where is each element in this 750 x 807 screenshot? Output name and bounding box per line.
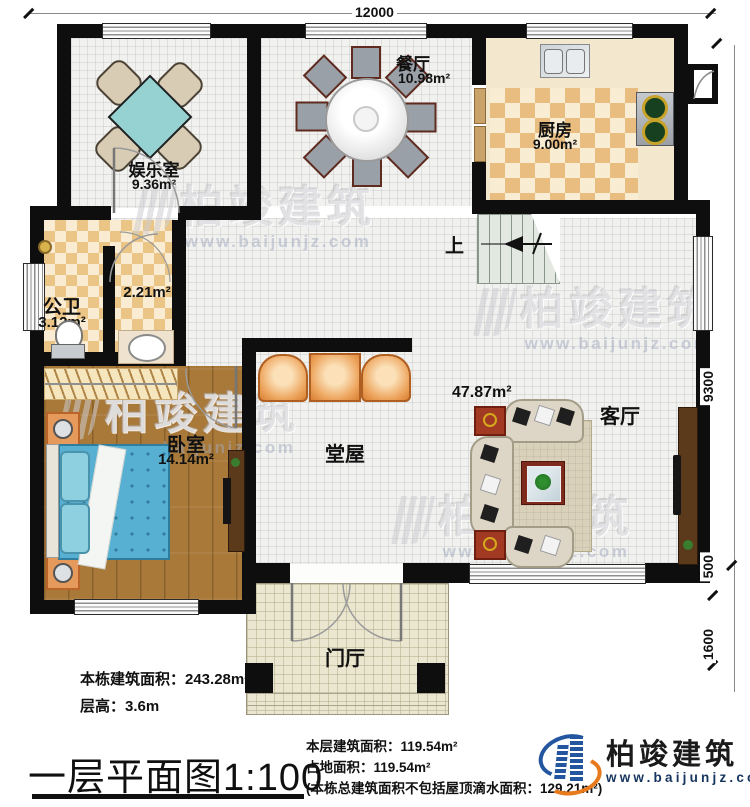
plan-title-underline	[32, 794, 304, 799]
logo-company-name: 柏竣建筑	[606, 740, 750, 770]
sofa-two-seat	[504, 526, 574, 568]
stairs-up-label: 上	[445, 231, 464, 258]
hall-label: 堂屋	[300, 438, 390, 467]
sink-basin	[544, 49, 563, 74]
washroom-area: 2.21m²	[118, 284, 176, 301]
plant	[535, 474, 551, 490]
coffee-table	[521, 461, 565, 505]
end-table-ornament	[483, 413, 497, 427]
wardrobe	[44, 368, 178, 400]
cushion	[480, 504, 499, 523]
end-table	[474, 530, 506, 560]
armchair	[258, 354, 308, 402]
pillow	[60, 451, 90, 502]
living-room-label: 客厅	[580, 400, 660, 429]
floor-height-text: 层高：3.6m	[80, 695, 159, 716]
kitchen-sliding-door	[474, 126, 486, 162]
sink-basin	[566, 49, 585, 74]
bedside-lamp	[53, 563, 73, 583]
window	[75, 600, 198, 614]
sofa-left	[470, 436, 514, 538]
dining-room-area: 10.98m²	[398, 70, 450, 86]
window	[694, 237, 712, 330]
wall-foyer-top-left	[256, 563, 290, 583]
cushion	[534, 405, 555, 426]
logo-website: www.baijunjz.com	[606, 770, 750, 785]
stove-burner	[642, 119, 668, 145]
pillow	[60, 503, 90, 554]
end-table-ornament	[483, 537, 497, 551]
wall-foyer-top-right	[403, 563, 447, 583]
wall-bath-divider	[103, 246, 115, 360]
dimension-right-label: 9300	[700, 368, 716, 405]
sofa-three-seat	[504, 399, 584, 443]
cushion	[512, 407, 531, 426]
wall-left-upper	[57, 24, 71, 220]
cushion	[480, 474, 501, 495]
bedside-lamp	[53, 419, 73, 439]
armchair	[361, 354, 411, 402]
end-table	[474, 406, 506, 436]
kitchen-sliding-door	[474, 88, 486, 124]
plan-title: 一层平面图1:100	[28, 746, 323, 801]
window	[103, 24, 210, 38]
tv-living	[673, 455, 681, 515]
washbasin	[128, 334, 166, 362]
side-table	[309, 353, 361, 402]
cushion	[556, 407, 575, 426]
kitchen-stove	[636, 92, 674, 146]
foyer-door-opening	[290, 564, 403, 583]
foyer-step-line	[247, 693, 446, 694]
foyer-step-line	[247, 705, 446, 706]
stove-burner	[642, 95, 668, 121]
wall-kitchen-bottom	[472, 200, 710, 214]
cushion	[514, 535, 533, 554]
floor-plan-canvas: 柏竣建筑 www.baijunjz.com 柏竣建筑 www.baijunjz.…	[0, 0, 750, 807]
dimension-right-label: 500	[700, 552, 716, 581]
nightstand	[46, 556, 80, 590]
flue-box	[688, 64, 718, 104]
company-logo-icon	[540, 733, 596, 791]
dimension-tick	[707, 590, 718, 601]
living-room-area: 47.87m²	[452, 384, 512, 402]
logo-building-bar	[570, 737, 583, 781]
toilet-tank	[51, 344, 85, 359]
building-area-text: 本栋建筑面积：243.28m²	[80, 668, 249, 689]
ceiling-lamp	[38, 240, 52, 254]
foyer-label: 门厅	[300, 642, 390, 671]
window	[306, 24, 426, 38]
wall-hall-screen	[256, 338, 412, 352]
dimension-right-label: 1600	[700, 626, 716, 663]
foyer-column	[417, 663, 445, 693]
bedroom-area: 14.14m²	[136, 451, 236, 468]
plant	[683, 540, 693, 550]
logo-text-block: 柏竣建筑 www.baijunjz.com	[606, 740, 750, 785]
bed-headboard	[46, 444, 59, 558]
wall-entertainment-bottom	[178, 206, 261, 220]
wall-kitchen-right	[674, 24, 688, 200]
nightstand	[46, 412, 80, 446]
tv	[223, 478, 231, 524]
dimension-tick	[726, 560, 737, 571]
company-logo: 柏竣建筑 www.baijunjz.com	[540, 733, 750, 791]
kitchen-sink	[540, 44, 590, 78]
window	[527, 24, 632, 38]
wardrobe-rail	[45, 383, 177, 385]
dimension-top-label: 12000	[352, 4, 397, 20]
kitchen-area: 9.00m²	[515, 136, 595, 152]
wall-dining-divider	[247, 38, 261, 206]
chair	[351, 46, 381, 79]
dimension-line-right	[734, 45, 735, 692]
chair	[296, 102, 329, 132]
dining-table-center	[353, 106, 379, 132]
wall-living-bottom-left	[447, 563, 470, 583]
cushion	[540, 535, 561, 556]
dimension-tick	[711, 38, 722, 49]
cushion	[480, 444, 499, 463]
entertainment-room-area: 9.36m²	[112, 176, 196, 192]
wall-kitchen-left-a	[472, 38, 486, 85]
